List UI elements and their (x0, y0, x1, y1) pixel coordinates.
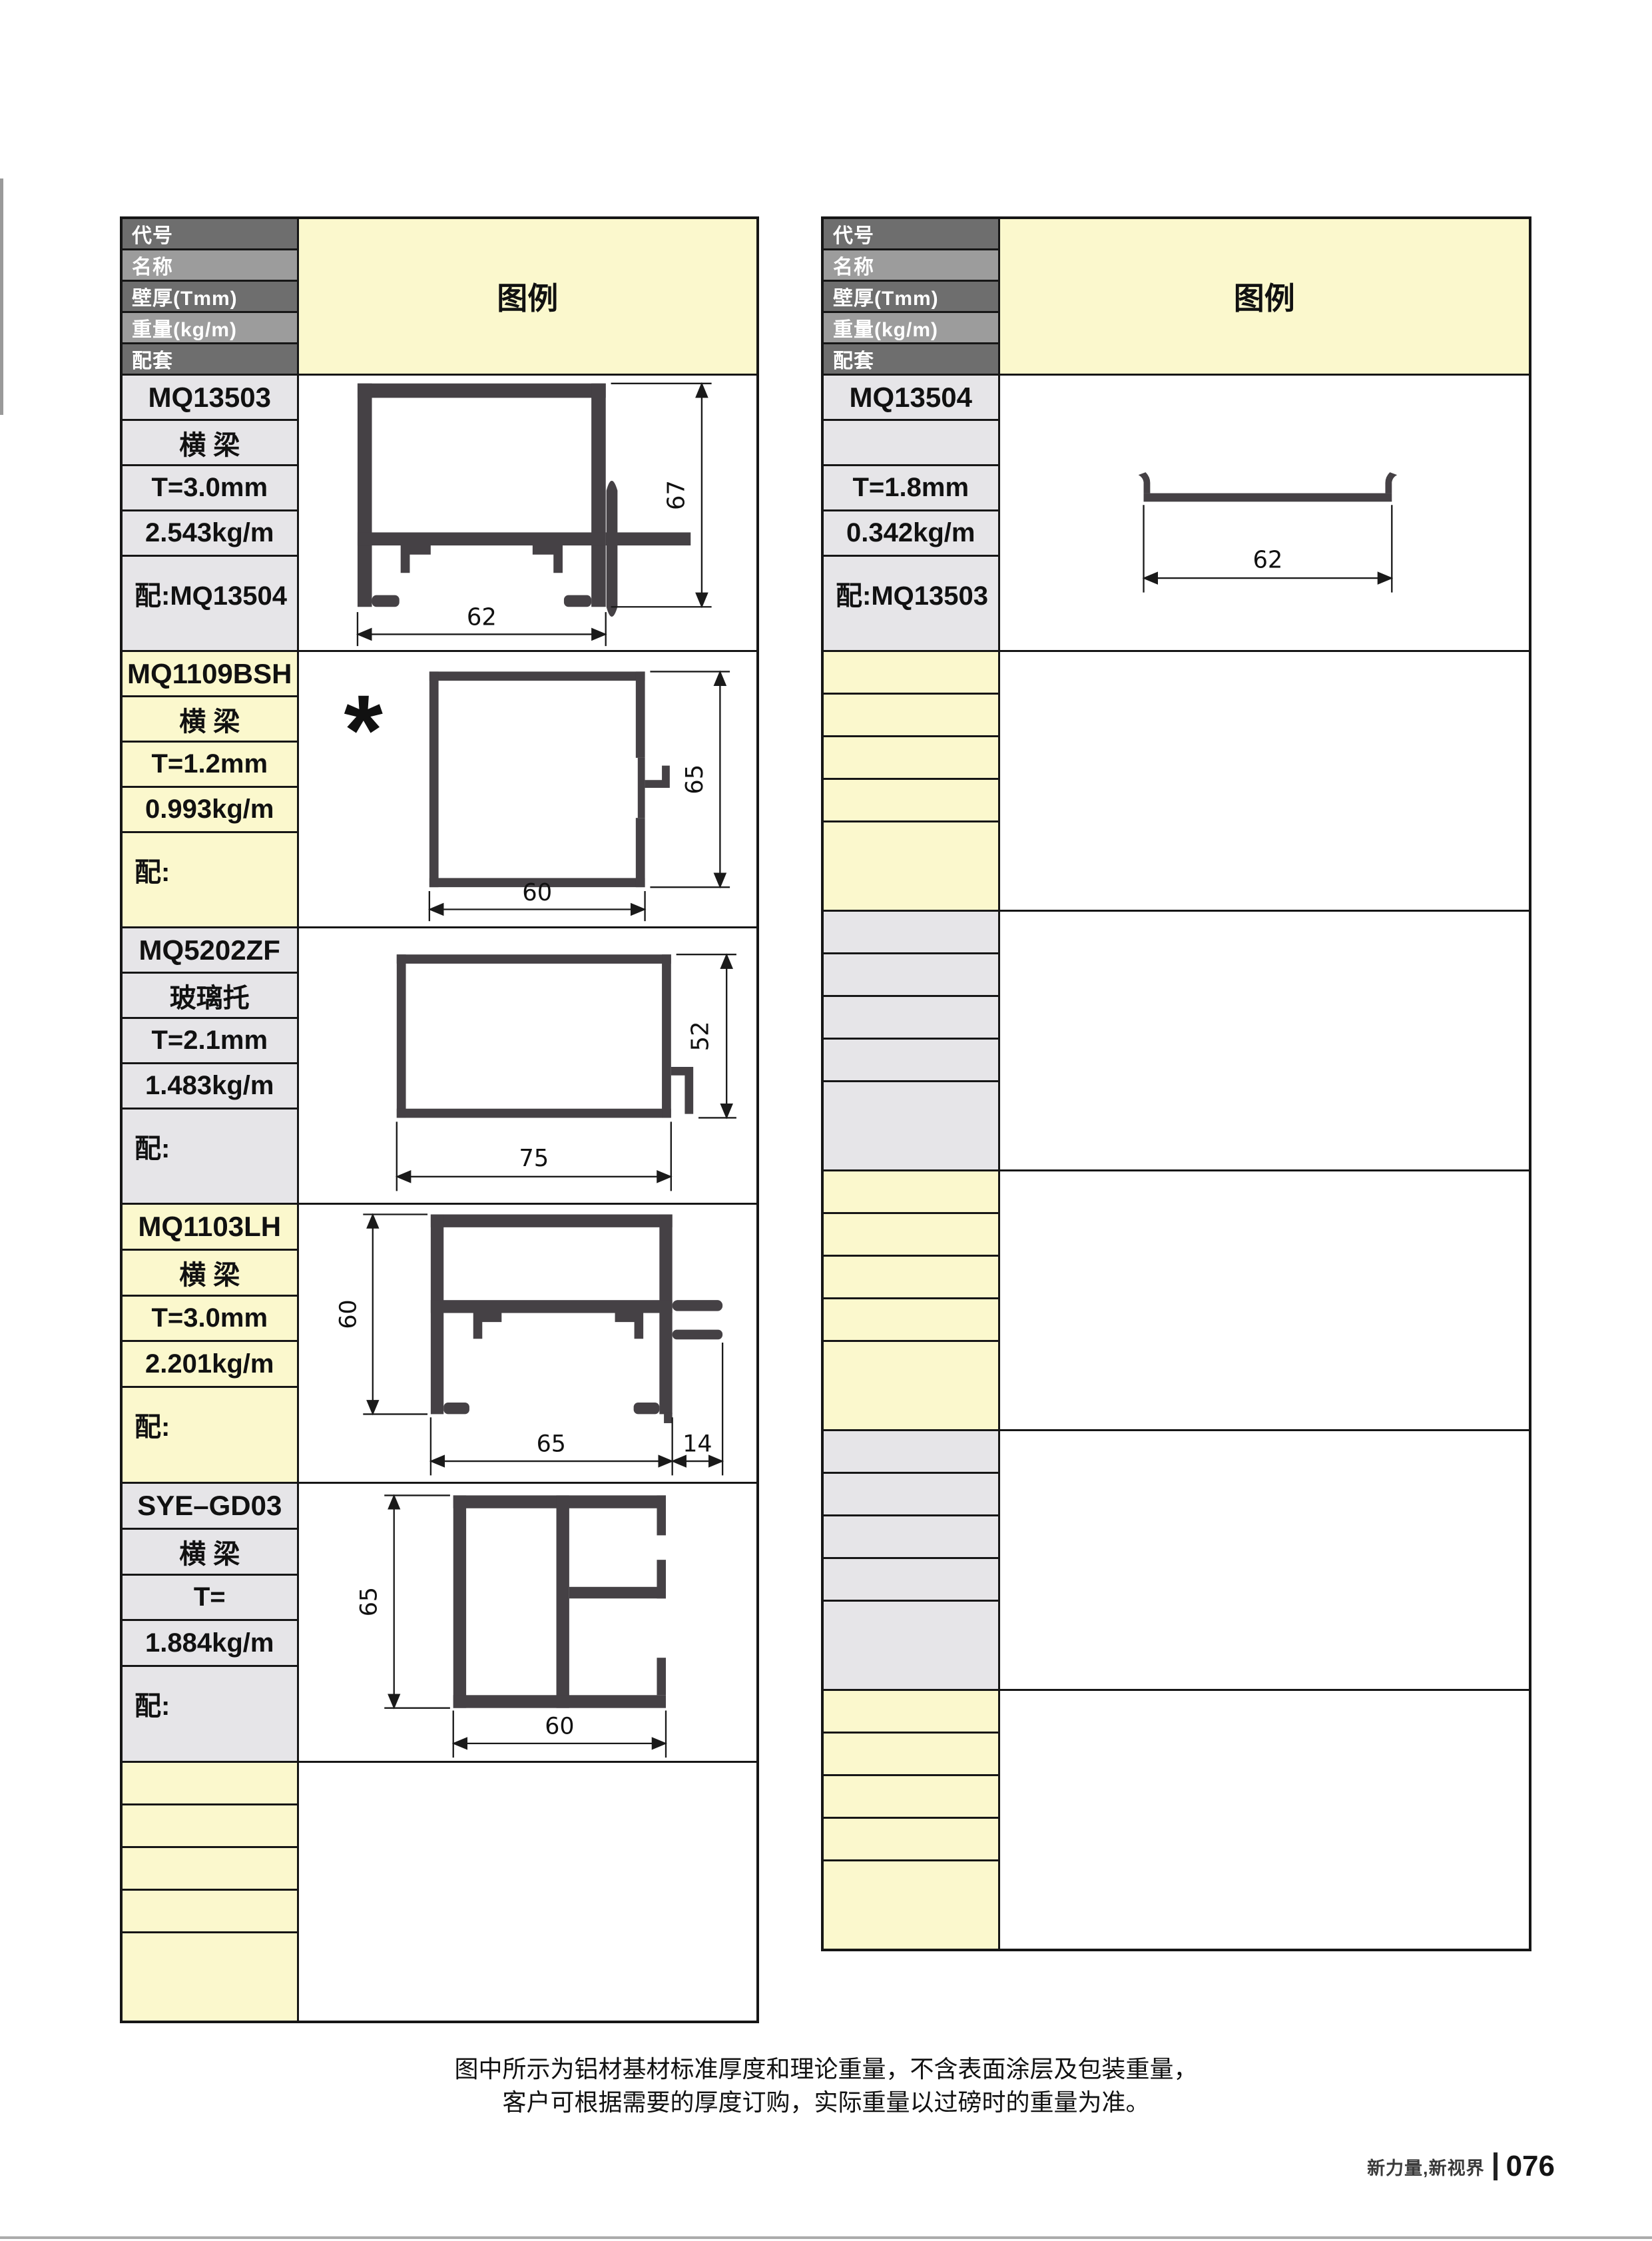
footnote-line2: 客户可根据需要的厚度订购，实际重量以过磅时的重量为准。 (0, 2086, 1652, 2119)
profile-diagram-mq5202zf: 75 52 (311, 928, 744, 1203)
dim-width-label: 60 (523, 879, 553, 906)
legend-empty (999, 911, 1530, 1171)
header-label-match: 配套 (822, 344, 999, 375)
cell-thickness: T=3.0mm (121, 466, 298, 511)
cell-thickness: T=2.1mm (121, 1018, 298, 1064)
cell-match: 配:MQ13504 (121, 556, 298, 651)
cell-weight-empty (822, 1558, 999, 1601)
left-profile-table: 代号 图例 名称 壁厚(Tmm) 重量(kg/m) 配套 MQ13503 (120, 216, 759, 2023)
dim-width-label: 62 (1252, 546, 1282, 573)
dim-width-label: 75 (519, 1145, 549, 1172)
dim-width-label: 62 (467, 604, 497, 631)
dim-height-label: 52 (687, 1021, 714, 1051)
cell-match: 配: (121, 1109, 298, 1204)
legend-diagram-sye-gd03: 65 60 (298, 1483, 758, 1762)
cell-name-empty (822, 1473, 999, 1516)
cell-thickness-empty (822, 737, 999, 779)
cell-weight: 0.993kg/m (121, 787, 298, 832)
cell-match-empty (822, 822, 999, 911)
cell-match: 配: (121, 1666, 298, 1762)
cell-name: 横 梁 (121, 420, 298, 466)
cell-match-empty (822, 1082, 999, 1171)
cell-weight-empty (822, 1818, 999, 1861)
page-footer: 新力量,新视界 076 (1367, 2150, 1555, 2183)
right-profile-table: 代号 图例 名称 壁厚(Tmm) 重量(kg/m) 配套 MQ13504 (821, 216, 1531, 1951)
dim-height-label: 60 (336, 1299, 362, 1329)
legend-empty (999, 1431, 1530, 1690)
header-label-name: 名称 (121, 250, 298, 281)
cell-thickness: T= (121, 1574, 298, 1620)
cell-name: 横 梁 (121, 1528, 298, 1574)
profile-diagram-sye-gd03: 65 60 (311, 1484, 744, 1761)
header-label-thickness: 壁厚(Tmm) (121, 281, 298, 312)
catalog-page: 代号 图例 名称 壁厚(Tmm) 重量(kg/m) 配套 MQ13503 (0, 0, 1652, 2241)
legend-empty (999, 1690, 1530, 1950)
cell-code: SYE–GD03 (121, 1483, 298, 1529)
cell-thickness: T=3.0mm (121, 1295, 298, 1341)
legend-header: 图例 (999, 218, 1530, 375)
legend-empty (999, 651, 1530, 911)
dim-width-label: 65 (537, 1431, 566, 1458)
header-label-name: 名称 (822, 250, 999, 281)
cell-name: 横 梁 (121, 697, 298, 742)
cell-code: MQ5202ZF (121, 928, 298, 973)
legend-empty (999, 1171, 1530, 1431)
cell-weight-empty (822, 1039, 999, 1082)
cell-name-empty (121, 1805, 298, 1847)
page-number: 076 (1506, 2150, 1555, 2183)
cell-name (822, 420, 999, 466)
cell-code: MQ1103LH (121, 1204, 298, 1250)
brand-slogan: 新力量,新视界 (1367, 2154, 1485, 2180)
cell-code: MQ1109BSH (121, 651, 298, 697)
footnote-line1: 图中所示为铝材基材标准厚度和理论重量，不含表面涂层及包装重量， (0, 2053, 1652, 2086)
cell-weight: 2.543kg/m (121, 511, 298, 556)
legend-header: 图例 (298, 218, 758, 375)
header-label-weight: 重量(kg/m) (822, 312, 999, 344)
header-label-match: 配套 (121, 344, 298, 375)
cell-code: MQ13504 (822, 375, 999, 420)
cell-weight-empty (822, 1299, 999, 1341)
cell-match-empty (822, 1601, 999, 1690)
cell-weight-empty (121, 1890, 298, 1933)
cell-thickness-empty (822, 1516, 999, 1558)
cell-name-empty (822, 954, 999, 996)
dim-width2-label: 14 (683, 1431, 712, 1458)
cell-name: 玻璃托 (121, 973, 298, 1018)
cell-match: 配: (121, 1387, 298, 1483)
footnote: 图中所示为铝材基材标准厚度和理论重量，不含表面涂层及包装重量， 客户可根据需要的… (0, 2053, 1652, 2119)
cell-thickness-empty (822, 996, 999, 1039)
cell-name-empty (822, 1733, 999, 1775)
cell-name-empty (822, 694, 999, 737)
cell-match-empty (822, 1861, 999, 1950)
dim-width-label: 60 (545, 1713, 574, 1740)
cell-weight: 1.483kg/m (121, 1064, 298, 1109)
footer-divider (1494, 2152, 1498, 2180)
header-label-code: 代号 (121, 218, 298, 250)
cell-code-empty (822, 1690, 999, 1733)
legend-diagram-mq13504: 62 (999, 375, 1530, 651)
cell-code-empty (121, 1762, 298, 1805)
legend-diagram-mq1103lh: 60 65 14 (298, 1204, 758, 1483)
cell-match: 配: (121, 832, 298, 928)
profile-diagram-mq1109bsh: 60 65 (311, 652, 744, 926)
cell-thickness: T=1.8mm (822, 466, 999, 511)
profile-diagram-mq1103lh: 60 65 14 (308, 1205, 747, 1482)
dim-height-label: 65 (681, 765, 708, 795)
cell-weight: 1.884kg/m (121, 1620, 298, 1666)
cell-weight-empty (822, 779, 999, 822)
profile-diagram-mq13503: 62 67 (311, 376, 744, 650)
legend-diagram-mq1109bsh: * (298, 651, 758, 928)
cell-match-empty (822, 1341, 999, 1431)
cell-code: MQ13503 (121, 375, 298, 420)
profile-diagram-mq13504: 62 (1015, 376, 1514, 650)
dim-height-label: 67 (663, 480, 690, 510)
legend-empty (298, 1762, 758, 2022)
page-edge-rule (0, 178, 3, 415)
dim-height-label: 65 (356, 1587, 383, 1616)
cell-name-empty (822, 1213, 999, 1256)
cell-code-empty (822, 911, 999, 954)
cell-weight: 0.342kg/m (822, 511, 999, 556)
cell-code-empty (822, 1431, 999, 1473)
cell-thickness-empty (822, 1775, 999, 1818)
cell-code-empty (822, 651, 999, 694)
cell-name: 横 梁 (121, 1249, 298, 1295)
cell-match-empty (121, 1933, 298, 2022)
cell-code-empty (822, 1171, 999, 1213)
cell-thickness-empty (121, 1847, 298, 1890)
cell-thickness: T=1.2mm (121, 742, 298, 787)
page-bottom-rule (0, 2236, 1652, 2239)
cell-weight: 2.201kg/m (121, 1341, 298, 1387)
legend-diagram-mq5202zf: 75 52 (298, 928, 758, 1204)
cell-match: 配:MQ13503 (822, 556, 999, 651)
cell-thickness-empty (822, 1256, 999, 1299)
header-label-thickness: 壁厚(Tmm) (822, 281, 999, 312)
header-label-code: 代号 (822, 218, 999, 250)
header-label-weight: 重量(kg/m) (121, 312, 298, 344)
legend-diagram-mq13503: 62 67 (298, 375, 758, 651)
